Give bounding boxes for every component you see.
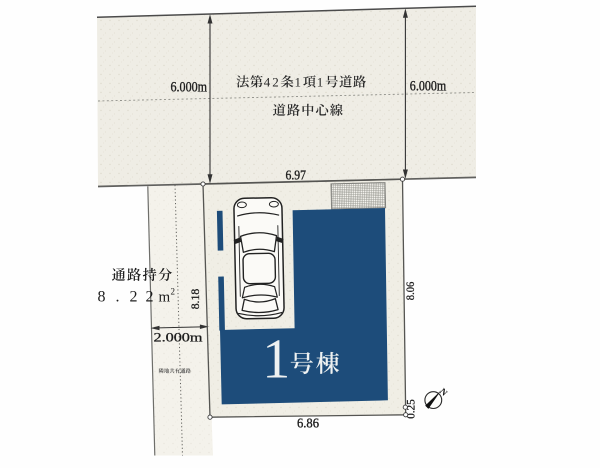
svg-text:8.18: 8.18 — [190, 289, 202, 310]
svg-text:1: 1 — [317, 74, 324, 89]
svg-text:8.06: 8.06 — [405, 281, 417, 300]
svg-text:8: 8 — [98, 289, 106, 306]
svg-text:2.000m: 2.000m — [154, 330, 203, 345]
svg-text:2: 2 — [130, 289, 138, 306]
svg-text:.: . — [116, 289, 120, 306]
svg-text:6.000m: 6.000m — [410, 79, 447, 95]
svg-text:1: 1 — [295, 74, 302, 89]
svg-text:m: m — [159, 290, 171, 306]
svg-text:2: 2 — [272, 74, 279, 89]
svg-text:6.000m: 6.000m — [171, 80, 208, 96]
svg-text:6.86: 6.86 — [297, 415, 319, 430]
svg-text:1: 1 — [262, 329, 290, 391]
svg-text:2: 2 — [146, 289, 154, 306]
svg-text:2: 2 — [171, 287, 176, 297]
svg-text:6.97: 6.97 — [286, 167, 307, 182]
svg-text:4: 4 — [264, 74, 271, 89]
